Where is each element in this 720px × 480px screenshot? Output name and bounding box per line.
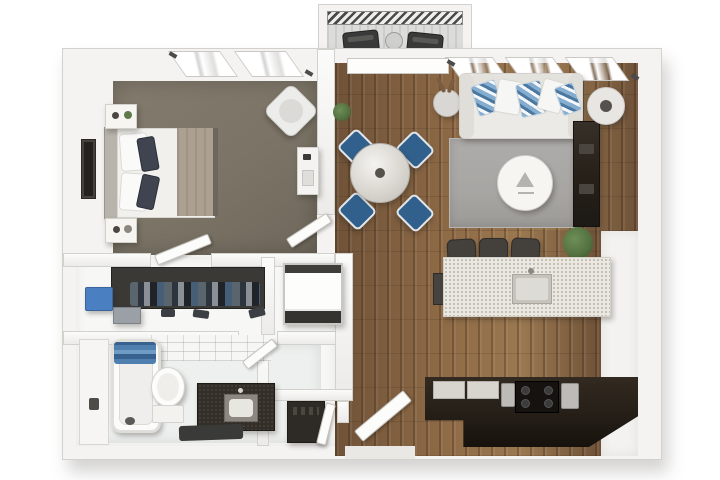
sofa-armrest (460, 74, 474, 138)
wall-bedroom-south-a (63, 253, 151, 267)
balcony-railing (327, 11, 463, 25)
balcony-sliding-door (347, 58, 449, 74)
bedroom-window (168, 51, 238, 77)
toilet-tank (152, 405, 184, 423)
shoe (161, 309, 175, 317)
nightstand-decor (113, 226, 120, 233)
shower-glass-door (285, 309, 341, 323)
table-lamp (600, 100, 612, 112)
counter-section (433, 381, 465, 399)
living-plant (563, 227, 593, 259)
burner (521, 386, 530, 395)
bedroom-window (234, 51, 304, 77)
shower-stall (283, 263, 343, 325)
kitchen-faucet (528, 268, 534, 274)
bathroom-side-counter (79, 339, 109, 445)
kitchen-island (443, 257, 611, 317)
cookware (501, 383, 515, 407)
bathroom-fixture (89, 398, 99, 410)
gray-storage-box (113, 307, 141, 324)
wall-utility-east (337, 401, 349, 423)
kitchen-sink (512, 274, 552, 304)
wall-bedroom-east (317, 49, 335, 215)
nightstand-plant (124, 111, 132, 119)
decor-sculpture-pedestal (433, 89, 461, 117)
closet-hanging-rod (111, 267, 265, 309)
wall-closet-south-b (277, 331, 337, 345)
blue-towels (114, 342, 156, 364)
console-shelf (579, 184, 594, 194)
apartment-unit (62, 48, 662, 460)
entry-threshold (345, 446, 415, 459)
coffee-table-motif (516, 172, 534, 187)
nightstand-north (105, 104, 137, 129)
dining-table (350, 143, 410, 203)
burner (521, 399, 530, 408)
sofa (459, 73, 583, 139)
range-stove (515, 381, 559, 413)
dining-plant (333, 103, 351, 121)
bed-footboard (213, 128, 218, 216)
nightstand-decor (112, 112, 119, 119)
bath-mat (179, 424, 243, 441)
table-center-post (375, 168, 385, 178)
cookware (561, 383, 579, 409)
nightstand-south (105, 218, 137, 243)
vanity-faucet (238, 388, 243, 393)
coffee-table (497, 155, 553, 211)
floorplan-image (0, 0, 720, 480)
burner (544, 386, 553, 395)
coffee-table-motif-line (518, 192, 534, 194)
shower-glass-panel (285, 265, 341, 273)
hanging-clothes (130, 282, 260, 306)
console-shelf (579, 144, 594, 154)
blue-storage-bin (85, 287, 113, 311)
media-console (573, 121, 600, 227)
bedroom-wall-art (81, 139, 96, 199)
burner (544, 399, 553, 408)
window-sill-tick (305, 69, 314, 76)
counter-section (467, 381, 499, 399)
nightstand-lamp (124, 225, 132, 233)
side-table (587, 87, 625, 125)
bedroom-desk (297, 147, 319, 195)
desk-item (303, 154, 311, 160)
tub-faucet (125, 417, 135, 425)
bed-blanket (177, 128, 213, 216)
toilet-bowl (151, 367, 185, 407)
vanity-sink (224, 394, 258, 422)
desk-pad (302, 170, 314, 186)
